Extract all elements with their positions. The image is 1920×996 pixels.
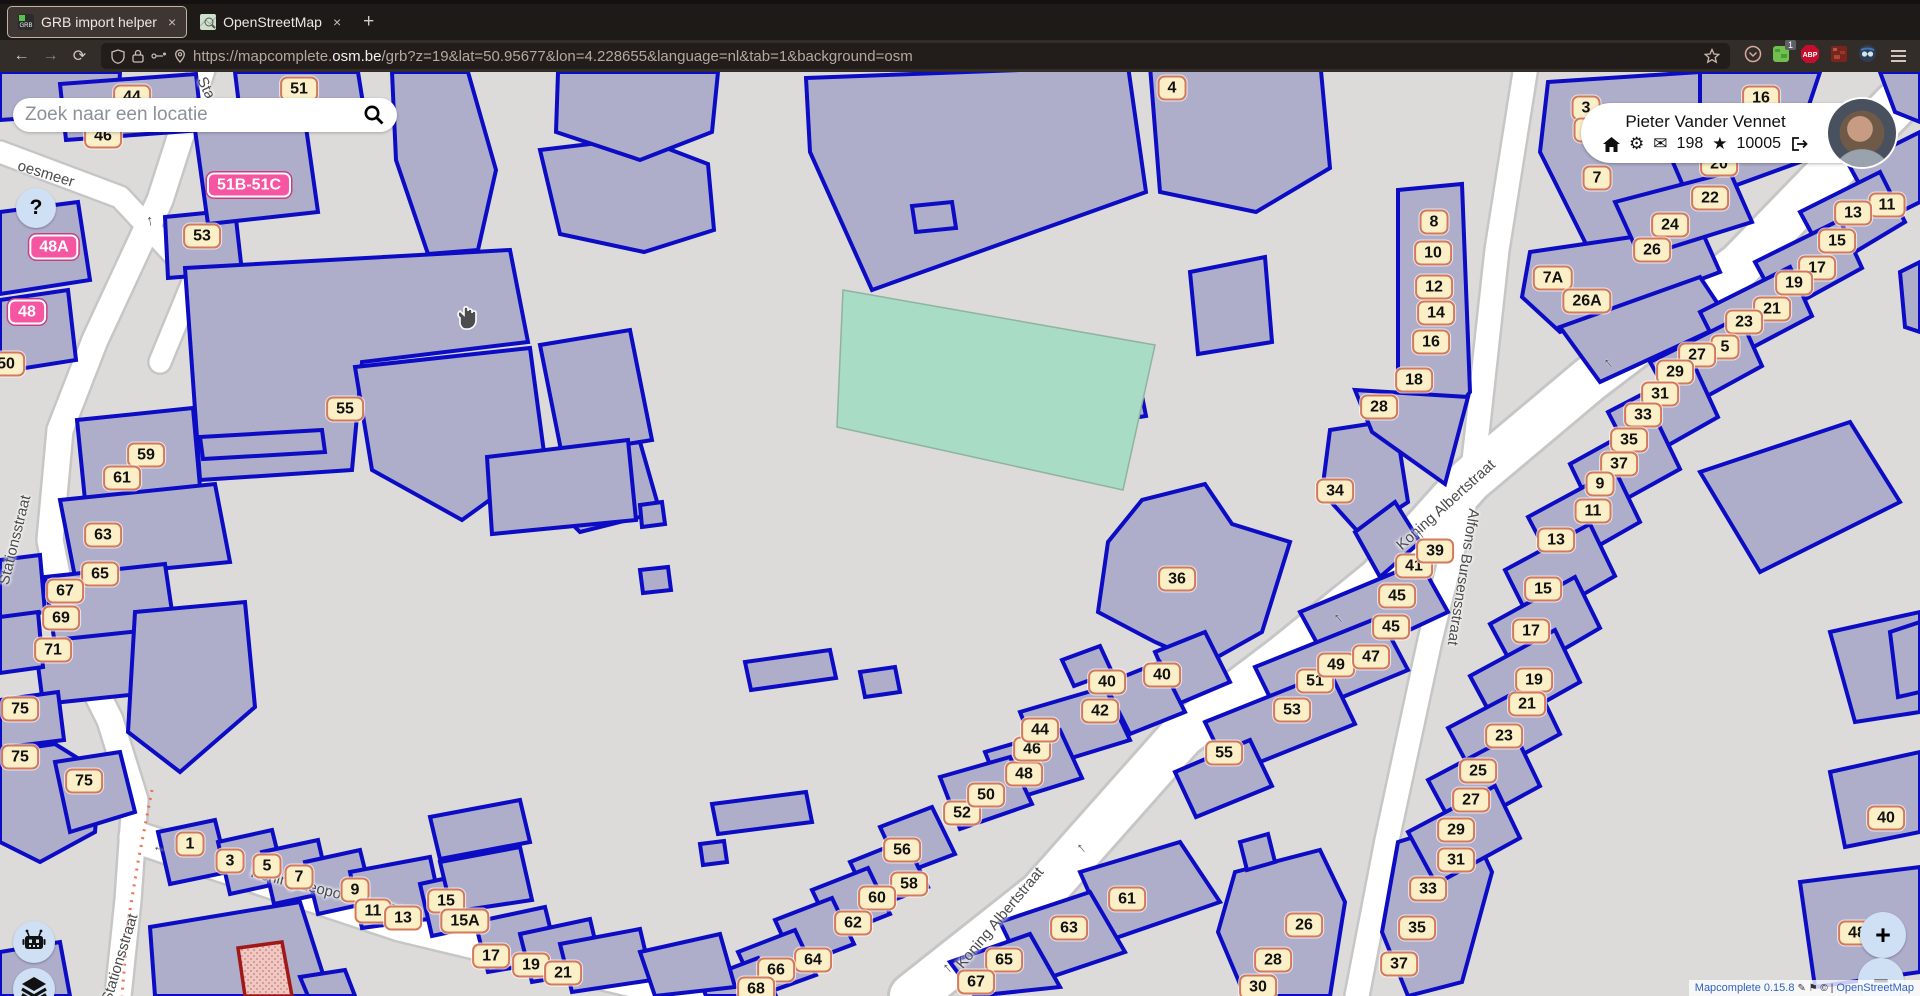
house-number-label[interactable]: 40 (1867, 806, 1905, 831)
house-number-label[interactable]: 17 (1512, 619, 1550, 644)
pocket-icon[interactable] (1744, 45, 1762, 68)
house-number-label[interactable]: 48 (1005, 762, 1043, 787)
house-number-label[interactable]: 14 (1417, 301, 1455, 326)
house-number-label[interactable]: 63 (84, 523, 122, 548)
house-number-label[interactable]: 30 (1239, 975, 1277, 996)
house-number-label[interactable]: 16 (1412, 330, 1450, 355)
tab-grb-import-helper[interactable]: GRB GRB import helper × (8, 7, 186, 37)
permissions-icon[interactable] (151, 51, 167, 61)
house-number-label[interactable]: 26 (1285, 913, 1323, 938)
house-number-label[interactable]: 23 (1725, 310, 1763, 335)
location-search-bar[interactable]: Zoek naar een locatie (13, 98, 397, 132)
changeset-count: 10005 (1737, 135, 1782, 153)
house-number-label[interactable]: 24 (1651, 213, 1689, 238)
house-number-label[interactable]: 67 (46, 579, 84, 604)
bookmark-star-icon[interactable] (1704, 48, 1720, 64)
house-number-label[interactable]: 18 (1395, 368, 1433, 393)
house-number-label[interactable]: 47 (1352, 645, 1390, 670)
house-number-label[interactable]: 59 (127, 443, 165, 468)
browser-window: GRB GRB import helper × OpenStreetMap × … (0, 0, 1920, 72)
tab-bar: GRB GRB import helper × OpenStreetMap × … (0, 4, 1920, 40)
cors-extension-icon[interactable] (1830, 45, 1848, 68)
grb-import-candidate-polygon[interactable] (238, 942, 292, 996)
user-name: Pieter Vander Vennet (1603, 112, 1808, 132)
house-number-label[interactable]: 25 (1459, 759, 1497, 784)
address-range-label[interactable]: 51B-51C (207, 173, 291, 198)
changeset-star-icon: ★ (1712, 134, 1727, 154)
house-number-label[interactable]: 33 (1409, 877, 1447, 902)
house-number-label[interactable]: 28 (1360, 395, 1398, 420)
map-attribution: Mapcomplete 0.15.8 ✎ ⚑ © | OpenStreetMap (1689, 980, 1920, 996)
oneway-arrow-icon: ← (142, 212, 161, 230)
logout-icon[interactable] (1790, 136, 1808, 152)
house-number-label[interactable]: 15 (1818, 229, 1856, 254)
map-base-layer (0, 72, 1920, 996)
house-number-label[interactable]: 55 (326, 397, 364, 422)
house-number-label[interactable]: 40 (1143, 663, 1181, 688)
house-number-label[interactable]: 62 (834, 911, 872, 936)
forward-button[interactable]: → (37, 47, 64, 65)
house-number-label[interactable]: 22 (1691, 186, 1729, 211)
house-number-label[interactable]: 1 (176, 832, 205, 857)
house-number-label[interactable]: 9 (1586, 472, 1615, 497)
new-tab-button[interactable]: + (363, 11, 374, 33)
home-icon[interactable] (1603, 137, 1620, 152)
back-button[interactable]: ← (8, 47, 35, 65)
house-number-label[interactable]: 21 (1508, 692, 1546, 717)
attribution-icons[interactable]: ✎ ⚑ © (1797, 983, 1827, 994)
house-number-label[interactable]: 3 (216, 849, 245, 874)
house-number-label[interactable]: 21 (544, 961, 582, 986)
house-number-label[interactable]: 11 (1575, 499, 1612, 524)
house-number-label[interactable]: 75 (65, 769, 103, 794)
house-number-label[interactable]: 19 (1775, 271, 1813, 296)
house-number-label[interactable]: 53 (1273, 698, 1311, 723)
house-number-label[interactable]: 65 (985, 948, 1023, 973)
house-number-label[interactable]: 27 (1452, 788, 1490, 813)
tab-close-icon[interactable]: × (333, 14, 341, 30)
url-text: https://mapcomplete.osm.be/grb?z=19&lat=… (193, 48, 1697, 65)
attribution-osm-link[interactable]: OpenStreetMap (1836, 982, 1914, 994)
house-number-label[interactable]: 26A (1562, 289, 1611, 314)
house-number-label[interactable]: 11 (1869, 193, 1906, 218)
messages-mail-icon[interactable]: ✉ (1653, 134, 1667, 154)
lock-icon[interactable] (132, 49, 144, 63)
automation-robot-button[interactable] (13, 921, 55, 963)
extension-green-icon[interactable]: 1 (1772, 45, 1790, 68)
house-number-label[interactable]: 15 (1524, 577, 1562, 602)
adblock-plus-icon[interactable]: ABP (1800, 44, 1820, 69)
house-number-label[interactable]: 8 (1420, 210, 1449, 235)
buildings-layer[interactable] (0, 72, 1920, 996)
tab-title: OpenStreetMap (223, 14, 322, 30)
selected-parcel-polygon[interactable] (837, 290, 1155, 490)
house-number-label[interactable]: 35 (1610, 428, 1648, 453)
navigation-toolbar: ← → ⟳ https://mapcomplete.osm.be/grb?z=1… (0, 40, 1920, 72)
house-number-label[interactable]: 13 (1537, 528, 1575, 553)
house-number-label[interactable]: 31 (1437, 848, 1475, 873)
settings-gear-icon[interactable]: ⚙ (1629, 134, 1644, 154)
address-range-label[interactable]: 48A (29, 235, 78, 260)
glasses-extension-icon[interactable] (1858, 44, 1877, 68)
user-panel[interactable]: Pieter Vander Vennet ⚙ ✉ 198 ★ 10005 (1581, 103, 1892, 163)
grb-tab-icon: GRB (18, 14, 34, 30)
house-number-label[interactable]: 23 (1485, 724, 1523, 749)
house-number-label[interactable]: 39 (1416, 539, 1454, 564)
house-number-label[interactable]: 13 (1834, 201, 1872, 226)
extension-badge: 1 (1785, 40, 1796, 50)
house-number-label[interactable]: 29 (1437, 818, 1475, 843)
layers-icon (21, 976, 47, 996)
menu-hamburger-icon[interactable] (1891, 50, 1906, 62)
attribution-app-link[interactable]: Mapcomplete 0.15.8 (1695, 982, 1795, 994)
tab-openstreetmap[interactable]: OpenStreetMap × (190, 7, 351, 37)
house-number-label[interactable]: 64 (794, 948, 832, 973)
extension-area: 1 ABP (1738, 44, 1912, 69)
house-number-label[interactable]: 45 (1378, 584, 1416, 609)
map-canvas[interactable]: 4451465351B-51C48A4850555961636567697175… (0, 72, 1920, 996)
house-number-label[interactable]: 17 (472, 944, 510, 969)
svg-text:ABP: ABP (1803, 52, 1818, 59)
reload-button[interactable]: ⟳ (66, 46, 93, 66)
house-number-label[interactable]: 4 (1158, 76, 1187, 101)
house-number-label[interactable]: 10 (1414, 241, 1452, 266)
house-number-label[interactable]: 50 (0, 352, 25, 377)
search-placeholder: Zoek naar een locatie (25, 104, 363, 126)
robot-icon (21, 929, 47, 955)
osm-tab-icon (200, 14, 216, 30)
house-number-label[interactable]: 7A (1533, 266, 1573, 291)
house-number-label[interactable]: 53 (183, 224, 221, 249)
zoom-in-button[interactable]: + (1860, 912, 1906, 958)
house-number-label[interactable]: 67 (957, 970, 995, 995)
house-number-label[interactable]: 5 (253, 854, 282, 879)
house-number-label[interactable]: 63 (1050, 916, 1088, 941)
house-number-label[interactable]: 40 (1088, 670, 1126, 695)
house-number-label[interactable]: 75 (1, 697, 39, 722)
tab-title: GRB import helper (41, 14, 157, 30)
house-number-label[interactable]: 12 (1415, 275, 1453, 300)
attribution-separator: | (1831, 983, 1834, 994)
house-number-label[interactable]: 37 (1380, 952, 1418, 977)
house-number-label[interactable]: 55 (1205, 741, 1243, 766)
house-number-label[interactable]: 19 (1515, 668, 1553, 693)
house-number-label[interactable]: 61 (1108, 887, 1146, 912)
house-number-label[interactable]: 34 (1316, 479, 1354, 504)
house-number-label[interactable]: 28 (1254, 948, 1292, 973)
house-number-label[interactable]: 56 (883, 838, 921, 863)
house-number-label[interactable]: 33 (1624, 403, 1662, 428)
help-button[interactable]: ? (16, 188, 56, 228)
house-number-label[interactable]: 50 (967, 783, 1005, 808)
house-number-label[interactable]: 68 (737, 977, 775, 996)
house-number-label[interactable]: 65 (81, 562, 119, 587)
svg-text:GRB: GRB (19, 23, 32, 29)
url-bar[interactable]: https://mapcomplete.osm.be/grb?z=19&lat=… (101, 43, 1730, 69)
address-range-label[interactable]: 48 (8, 300, 46, 325)
house-number-label[interactable]: 61 (103, 466, 141, 491)
house-number-label[interactable]: 49 (1317, 653, 1355, 678)
house-number-label[interactable]: 7 (285, 865, 314, 890)
house-number-label[interactable]: 69 (42, 606, 80, 631)
house-number-label[interactable]: 71 (34, 638, 72, 663)
messages-count: 198 (1677, 135, 1704, 153)
user-avatar[interactable] (1828, 99, 1896, 167)
tracking-shield-icon[interactable] (111, 49, 125, 64)
house-number-label[interactable]: 60 (858, 886, 896, 911)
tab-close-icon[interactable]: × (168, 14, 176, 30)
location-pin-icon[interactable] (174, 49, 186, 63)
house-number-label[interactable]: 45 (1372, 615, 1410, 640)
house-number-label[interactable]: 35 (1398, 916, 1436, 941)
house-number-label[interactable]: 42 (1081, 699, 1119, 724)
house-number-label[interactable]: 36 (1158, 567, 1196, 592)
house-number-label[interactable]: 26 (1633, 238, 1671, 263)
house-number-label[interactable]: 7 (1583, 166, 1612, 191)
house-number-label[interactable]: 75 (1, 745, 39, 770)
house-number-label[interactable]: 15A (440, 909, 489, 934)
search-icon[interactable] (363, 104, 385, 126)
house-number-label[interactable]: 44 (1021, 718, 1059, 743)
house-number-label[interactable]: 13 (384, 906, 422, 931)
